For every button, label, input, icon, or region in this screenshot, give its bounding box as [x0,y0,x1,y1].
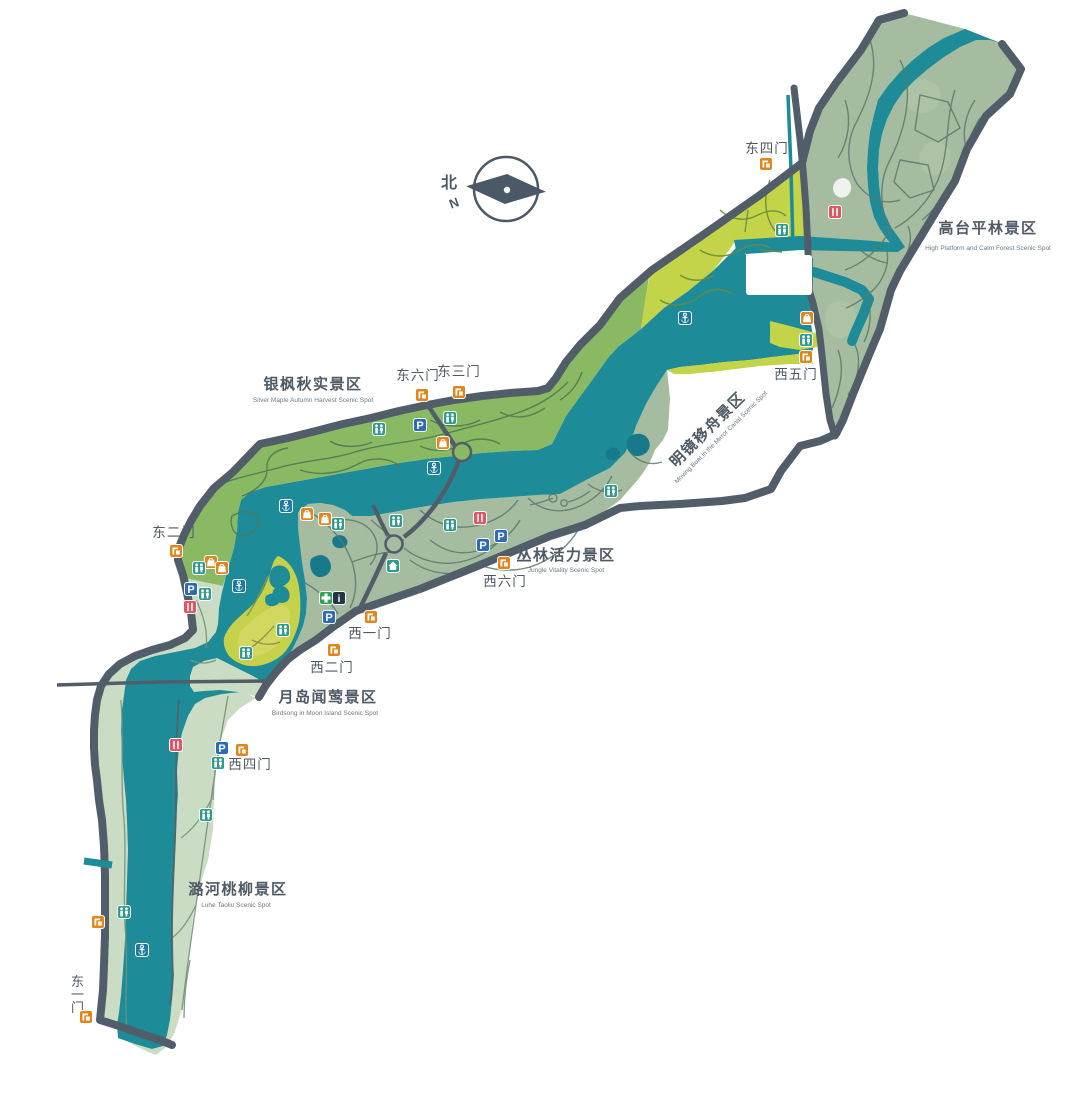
svg-text:东四门: 东四门 [745,141,789,156]
svg-text:北: 北 [441,174,459,192]
svg-text:Birdsong in Moon Island Scenic: Birdsong in Moon Island Scenic Spot [272,710,378,717]
svg-text:潞河桃柳景区: 潞河桃柳景区 [188,880,287,898]
svg-text:丛林活力景区: 丛林活力景区 [516,546,615,564]
svg-text:西一门: 西一门 [348,626,392,641]
svg-text:西二门: 西二门 [310,660,354,675]
svg-text:高台平林景区: 高台平林景区 [938,219,1037,237]
svg-text:银枫秋实景区: 银枫秋实景区 [263,375,362,393]
svg-text:Luhe Taoliu Scenic Spot: Luhe Taoliu Scenic Spot [201,902,271,909]
svg-text:月岛闻莺景区: 月岛闻莺景区 [277,688,377,706]
svg-text:西四门: 西四门 [228,757,272,772]
svg-text:东二门: 东二门 [152,525,196,540]
svg-text:东六门: 东六门 [396,368,440,383]
svg-text:西五门: 西五门 [774,367,818,382]
svg-text:东三门: 东三门 [437,364,481,379]
svg-text:Jungle Vitality Scenic Spot: Jungle Vitality Scenic Spot [528,567,605,574]
svg-text:High Platform and Calm Forest: High Platform and Calm Forest Scenic Spo… [925,245,1051,252]
svg-text:Silver Maple Autumn Harvest Sc: Silver Maple Autumn Harvest Scenic Spot [253,397,373,404]
svg-text:西六门: 西六门 [483,574,527,589]
